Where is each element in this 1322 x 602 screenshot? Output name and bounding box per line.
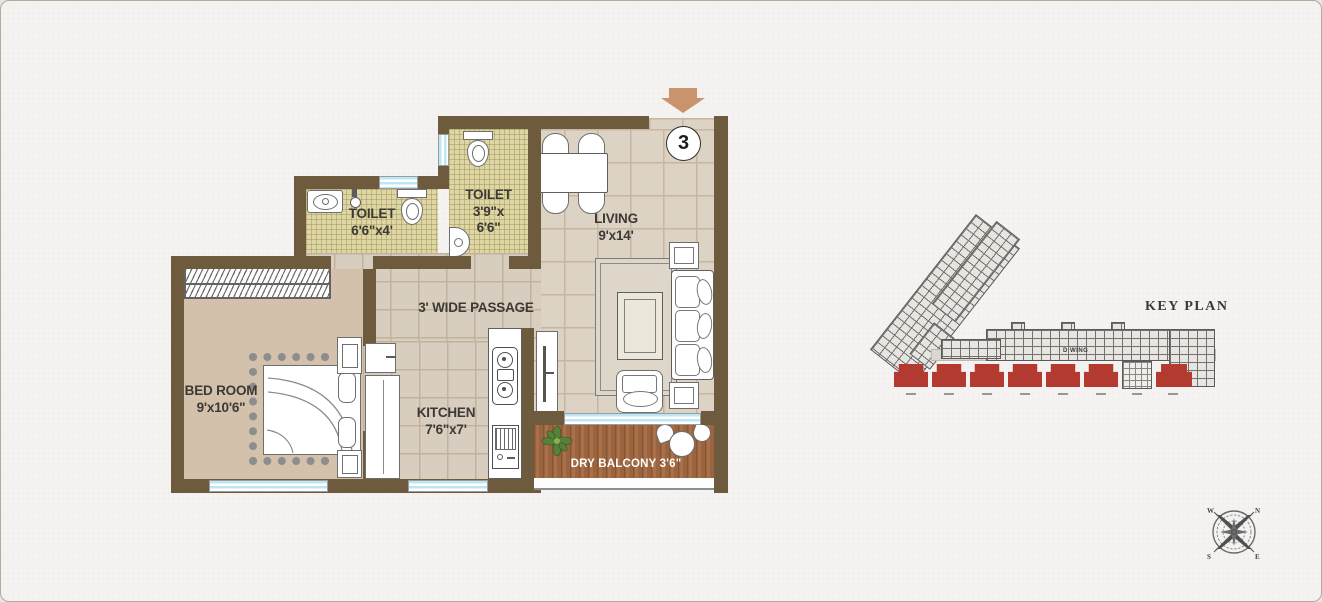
- wc-tank-icon: [463, 131, 493, 140]
- balcony-table: [669, 431, 695, 457]
- toilet2-label: TOILET 3'9"x 6'6": [449, 187, 528, 237]
- compass-rose-icon: W N S E: [1205, 503, 1263, 561]
- side-table: [669, 382, 699, 409]
- key-plan-wing-unit: [1011, 322, 1025, 330]
- bedroom-window: [209, 480, 328, 492]
- room-name: TOILET: [449, 187, 528, 204]
- key-plan-title: KEY PLAN: [1145, 299, 1228, 315]
- wall-toilet1-bottom-a: [306, 256, 331, 269]
- wall-toilet2-right: [528, 116, 541, 269]
- key-plan: KEY PLAN D WING: [871, 206, 1231, 406]
- wall-toilet1-bottom-b: [373, 256, 471, 269]
- unit-label-mark: [1096, 393, 1106, 395]
- unit-floor-plan: 3: [1, 1, 761, 602]
- toilet2-window: [438, 134, 449, 166]
- wing-label: D WING: [1063, 348, 1088, 354]
- wall-bedroom-top: [171, 256, 306, 269]
- highlighted-unit: [894, 364, 928, 387]
- highlighted-unit: [1084, 364, 1118, 387]
- room-dim: 6'6"x4': [306, 223, 438, 240]
- key-plan-wing-unit: [1061, 322, 1075, 330]
- compass-east-label: E: [1255, 553, 1260, 561]
- room-name: LIVING: [556, 211, 676, 228]
- highlighted-unit: [1156, 364, 1192, 387]
- wall-balcony-right-stub: [701, 411, 714, 425]
- living-balcony-window: [564, 413, 701, 425]
- unit-number-badge: 3: [666, 126, 701, 161]
- kitchen-window: [408, 480, 488, 492]
- wall-top: [438, 116, 649, 129]
- key-plan-wing-unit: [1111, 322, 1125, 330]
- unit-label-mark: [1058, 393, 1068, 395]
- compass-south-label: S: [1207, 553, 1211, 561]
- unit-label-mark: [906, 393, 916, 395]
- unit-number: 3: [678, 132, 689, 155]
- center-table: [617, 292, 663, 360]
- plant-icon: [541, 425, 573, 457]
- wc-tank-icon: [397, 189, 427, 198]
- compass-north-label: N: [1255, 507, 1260, 515]
- living-label: LIVING 9'x14': [556, 211, 676, 244]
- room-name: KITCHEN: [401, 405, 491, 422]
- bedroom-door-leaf: [365, 343, 396, 373]
- unit-label-mark: [982, 393, 992, 395]
- floor-plan-page: 3: [0, 0, 1322, 602]
- wall-right: [714, 116, 728, 493]
- key-plan-connector: [941, 339, 1001, 359]
- unit-label-mark: [1168, 393, 1178, 395]
- balcony-railing: [534, 478, 714, 490]
- appliance-icon: [492, 425, 519, 469]
- room-dim: 7'6"x7': [401, 422, 491, 439]
- side-table: [669, 242, 699, 269]
- balcony-label: DRY BALCONY 3'6": [546, 456, 706, 473]
- wardrobe: [184, 266, 331, 299]
- sofa: [671, 270, 714, 380]
- wall-left: [171, 256, 184, 493]
- room-dim: 6'6": [449, 220, 528, 237]
- wall-toilet1-top: [294, 176, 449, 189]
- tv-unit: [536, 331, 558, 417]
- compass-west-label: W: [1207, 507, 1214, 515]
- room-dim: 9'x14': [556, 228, 676, 245]
- bedroom-label: BED ROOM 9'x10'6": [161, 383, 281, 416]
- wall-bedroom-right-upper: [363, 269, 376, 346]
- wall-balcony-left-stub: [534, 411, 564, 425]
- nightstand: [337, 337, 362, 374]
- armchair: [616, 370, 663, 413]
- room-name: BED ROOM: [161, 383, 281, 400]
- shower-icon: [348, 189, 362, 207]
- toilet1-label: TOILET 6'6"x4': [306, 206, 438, 239]
- unit-label-mark: [1020, 393, 1030, 395]
- highlighted-unit: [932, 364, 966, 387]
- room-dim: 3'9"x: [449, 204, 528, 221]
- kitchen-label: KITCHEN 7'6"x7': [401, 405, 491, 438]
- highlighted-unit: [970, 364, 1004, 387]
- room-name: TOILET: [306, 206, 438, 223]
- entrance-arrow-icon: [661, 87, 705, 114]
- passage-label: 3' WIDE PASSAGE: [376, 300, 576, 317]
- highlighted-unit: [1046, 364, 1080, 387]
- toilet1-window: [379, 176, 418, 189]
- room-dim: 9'x10'6": [161, 400, 281, 417]
- dining-table: [534, 153, 608, 193]
- unit-label-mark: [1132, 393, 1142, 395]
- wall-kitchen-living: [522, 328, 534, 479]
- highlighted-unit: [1008, 364, 1042, 387]
- unit-label-mark: [944, 393, 954, 395]
- key-plan-unit-plain: [1122, 361, 1152, 389]
- nightstand: [337, 450, 362, 478]
- storage-cupboard: [365, 375, 400, 479]
- hob-icon: [492, 347, 518, 405]
